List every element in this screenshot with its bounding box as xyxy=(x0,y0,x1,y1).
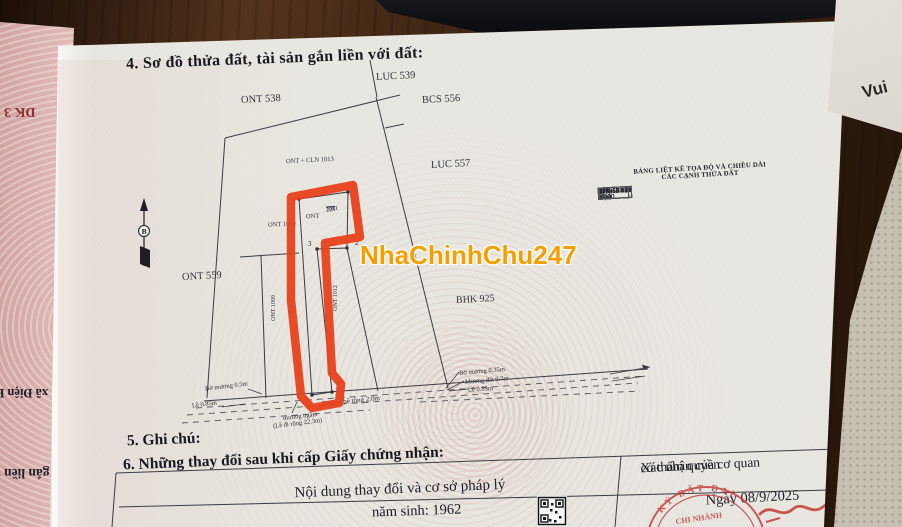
parcel-label-ont559: ONT 559 xyxy=(182,270,222,283)
parcel-label-ont1009: ONT 1009 xyxy=(271,283,277,333)
parcel-label-bhk925: BHK 925 xyxy=(456,293,495,306)
section5-title: 5. Ghi chú: xyxy=(127,430,201,451)
parcel-label-luc539: LUC 539 xyxy=(376,70,416,83)
certificate-page: 4. Sơ đồ thửa đất, tài sản gắn liền với … xyxy=(0,0,902,527)
partial-row-text: năm sinh: 1962 xyxy=(372,501,462,521)
parcel-label-luc557: LUC 557 xyxy=(431,158,471,171)
parcel-label-ont1010: ONT 1010 xyxy=(268,220,296,228)
plot-area: 228 xyxy=(326,206,335,213)
coordinate-table: BẢNG LIỆT KÊ TỌA ĐỘ VÀ CHIỀU DÀI CÁC CẠN… xyxy=(597,159,804,187)
parcel-label-ont1012: ONT 1012 xyxy=(333,273,339,323)
plot-landuse-label: ONT xyxy=(306,213,320,221)
pink-doc-text-3: gắn liền v xyxy=(0,465,50,481)
photo-scene: DK 3 xã Điện B gắn liền v 4. Sơ đồ thửa … xyxy=(0,0,902,527)
parcel-label-ont538: ONT 538 xyxy=(241,93,281,106)
pink-doc-text-2: xã Điện B xyxy=(0,385,48,400)
parcel-label-bcs556: BCS 556 xyxy=(422,93,461,106)
watermark-text: NhaChinhChu247 xyxy=(360,240,577,271)
pink-doc-text-1: DK 3 xyxy=(4,103,36,119)
